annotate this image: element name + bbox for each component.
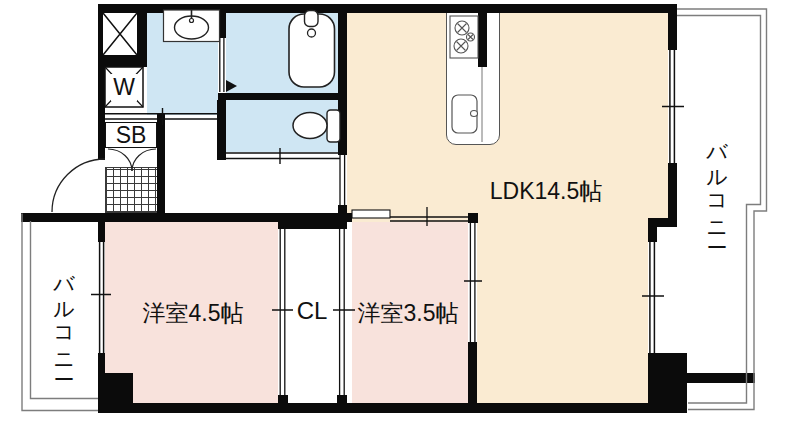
kitchen-stove bbox=[450, 16, 478, 58]
door-hall-to-ldk bbox=[340, 155, 345, 205]
bathtub bbox=[289, 11, 335, 88]
window-ldk-right-lower bbox=[642, 242, 664, 353]
shoe-box: SB bbox=[105, 122, 157, 148]
western2-label: 洋室3.5帖 bbox=[308, 300, 508, 326]
pipe-shaft-x-box bbox=[103, 13, 137, 55]
door-bathroom bbox=[220, 38, 237, 92]
ldk-label: LDK14.5帖 bbox=[446, 178, 646, 204]
plan-vector-overlay bbox=[0, 0, 800, 423]
kitchen-sink bbox=[452, 95, 478, 133]
door-western2-top bbox=[352, 207, 468, 226]
western1-label: 洋室4.5帖 bbox=[93, 300, 293, 326]
entrance-door-swing-arc bbox=[52, 159, 105, 212]
window-ldk-right-upper bbox=[662, 50, 684, 163]
washbasin bbox=[164, 9, 220, 42]
door-swing-marker-icon bbox=[226, 80, 237, 92]
washer-label-wrap: W bbox=[108, 74, 140, 100]
partition-toilet-bottom bbox=[226, 148, 340, 164]
floor-plan: SB W LDK14.5帖 洋室4.5帖 洋室3.5帖 CL バルコニー バルコ… bbox=[0, 0, 800, 423]
toilet bbox=[293, 110, 340, 142]
shoe-box-door-arcs bbox=[108, 149, 156, 171]
closet-label: CL bbox=[287, 298, 337, 324]
balcony-left-label: バルコニー bbox=[50, 238, 78, 393]
balcony-right-label: バルコニー bbox=[703, 108, 731, 258]
washer-label: W bbox=[111, 74, 137, 101]
window-western1-left bbox=[91, 242, 111, 353]
shoe-box-label: SB bbox=[116, 122, 147, 149]
